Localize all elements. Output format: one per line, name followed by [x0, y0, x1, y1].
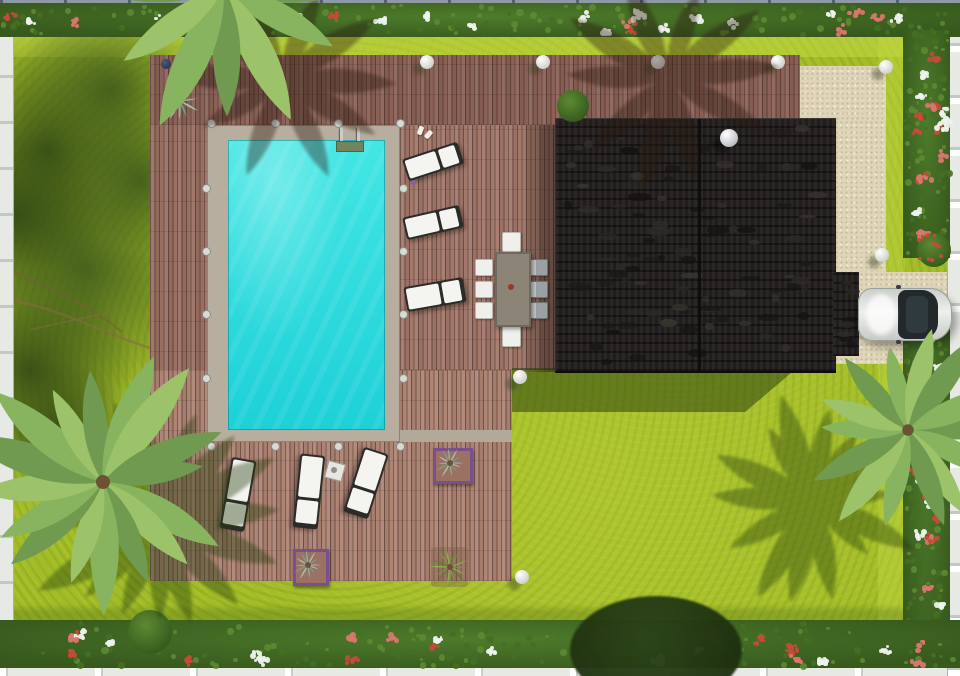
hedge-leaf [943, 12, 947, 16]
roof-stone [603, 323, 614, 328]
roof-stone [646, 310, 662, 316]
roof-stone [634, 281, 647, 285]
hedge-leaf [938, 643, 941, 646]
roof-stone [625, 266, 640, 272]
hedge-flower [433, 636, 438, 641]
hedge-leaf [911, 100, 917, 106]
hedge-flower [938, 154, 941, 157]
roof-stone [729, 289, 745, 296]
hedge-leaf [811, 660, 816, 665]
hedge-leaf [510, 653, 516, 659]
hedge-leaf [919, 34, 923, 38]
deck-light [399, 247, 408, 256]
hedge-leaf [938, 94, 945, 101]
hedge-leaf [385, 625, 389, 629]
hedge-leaf [905, 141, 910, 146]
hedge-leaf [530, 642, 536, 648]
hedge-flower [356, 658, 360, 662]
sphere-lamp [879, 60, 893, 74]
hedge-flower [5, 16, 10, 21]
roof-stone [672, 304, 688, 311]
hedge-leaf [924, 127, 928, 131]
lounger-backrest [439, 207, 460, 229]
hedge-leaf [904, 119, 907, 122]
hedge-flower [350, 659, 355, 664]
dining-chair [529, 281, 548, 298]
hedge-leaf [910, 218, 914, 222]
hedge-flower [841, 23, 845, 27]
hedge-leaf [449, 23, 452, 26]
hedge-leaf [908, 166, 911, 169]
hedge-leaf [939, 655, 943, 659]
hedge-flower [920, 118, 923, 121]
hedge-leaf [934, 46, 938, 50]
hedge-leaf [783, 653, 788, 658]
hedge-leaf [396, 651, 400, 655]
hedge-leaf [488, 6, 493, 11]
roof-stone [749, 240, 760, 245]
hedge-leaf [325, 648, 328, 651]
hedge-leaf [431, 663, 436, 668]
hedge-leaf [936, 190, 940, 194]
side-table-item [331, 467, 337, 473]
hedge-leaf [854, 647, 861, 654]
agave-plant [400, 413, 500, 513]
lounger-seat [406, 283, 442, 309]
hedge-leaf [558, 631, 561, 634]
hedge-flower [918, 229, 923, 234]
hedge-flower [918, 644, 922, 648]
flower-hedge [903, 30, 950, 258]
hedge-leaf [921, 47, 928, 54]
bush-flower [937, 245, 941, 249]
hedge-leaf [909, 106, 916, 113]
hedge-leaf [434, 19, 440, 25]
hedge-leaf [460, 628, 464, 632]
hedge-leaf [460, 634, 464, 638]
hedge-leaf [946, 39, 949, 42]
roof-stone [606, 330, 620, 333]
dining-table [495, 252, 531, 327]
dining-chair [529, 259, 548, 276]
hedge-flower [836, 32, 841, 37]
hedge-flower [879, 649, 883, 653]
hedge-flower [345, 661, 350, 666]
hedge-flower [938, 158, 944, 164]
palm-tree [20, 0, 428, 192]
palm-tree-crown [902, 424, 914, 436]
hedge-leaf [943, 232, 946, 235]
hedge-leaf [412, 638, 415, 641]
hedge-leaf [545, 635, 549, 639]
hedge-flower [854, 10, 860, 16]
hedge-leaf [905, 179, 912, 186]
bush-flower [917, 238, 921, 242]
hedge-leaf [946, 219, 949, 222]
hedge-leaf [10, 23, 17, 30]
hedge-flower [436, 645, 440, 649]
hedge-flower [795, 648, 800, 653]
roof-stone [675, 248, 692, 256]
hedge-leaf [439, 654, 446, 661]
hedge-flower [847, 11, 852, 16]
hedge-leaf [846, 20, 852, 26]
hedge-leaf [909, 650, 913, 654]
hedge-leaf [742, 661, 747, 666]
hedge-leaf [800, 663, 807, 670]
hedge-leaf [453, 663, 459, 669]
sphere-lamp [515, 570, 529, 584]
roof-stone [729, 225, 737, 233]
hedge-flower [882, 648, 888, 654]
roof-stone [716, 315, 729, 322]
hedge-flower [920, 70, 926, 76]
hedge-leaf [917, 149, 923, 155]
dining-chair [502, 325, 521, 347]
roof-stone [739, 321, 751, 325]
hedge-leaf [931, 40, 936, 45]
hedge-leaf [919, 197, 924, 202]
hedge-leaf [912, 31, 917, 36]
bush-flower [930, 258, 934, 262]
hedge-flower [896, 18, 901, 23]
bush-flower [925, 234, 929, 238]
roof-stone [681, 256, 695, 264]
hedge-leaf [381, 647, 386, 652]
hedge-leaf [560, 649, 567, 656]
lounger-backrest [441, 279, 462, 303]
dining-chair [475, 302, 493, 319]
deck-light [399, 374, 408, 383]
palm-tree [0, 308, 277, 656]
roof-stone [609, 270, 628, 278]
hedge-leaf [907, 88, 913, 94]
hedge-flower [934, 125, 940, 131]
hedge-flower [929, 177, 934, 182]
hedge-leaf [860, 658, 865, 663]
dining-chair [502, 232, 521, 252]
roof-stone [590, 343, 603, 351]
hedge-leaf [408, 649, 414, 655]
hedge-flower [932, 56, 935, 59]
hedge-flower [941, 129, 944, 132]
palm-tree-crown [96, 475, 110, 489]
deck-light [396, 442, 405, 451]
hedge-leaf [464, 658, 468, 662]
palm-shadow [522, 0, 814, 224]
dining-chair [475, 259, 493, 276]
hedge-leaf [942, 185, 946, 189]
hedge-leaf [946, 170, 953, 177]
hedge-leaf [938, 178, 942, 182]
hedge-leaf [470, 658, 477, 665]
hedge-leaf [327, 662, 332, 667]
lounger-backrest [346, 488, 373, 515]
hedge-leaf [420, 658, 423, 661]
grass-plant-crown [447, 564, 453, 570]
hedge-leaf [477, 646, 484, 653]
hedge-leaf [908, 161, 912, 165]
hedge-leaf [874, 25, 880, 31]
dining-chair [529, 302, 548, 319]
hedge-leaf [919, 84, 924, 89]
hedge-leaf [526, 635, 532, 641]
hedge-leaf [831, 660, 835, 664]
hedge-leaf [507, 12, 511, 16]
hedge-leaf [906, 251, 910, 255]
hedge-leaf [483, 21, 489, 27]
roof-stone [742, 276, 760, 279]
hedge-leaf [917, 25, 921, 29]
hedge-leaf [936, 12, 941, 17]
hedge-leaf [540, 659, 545, 664]
hedge-leaf [931, 653, 936, 658]
roof-stone [644, 257, 658, 261]
hedge-leaf [915, 121, 920, 126]
hedge-leaf [851, 5, 856, 10]
hedge-flower [831, 14, 835, 18]
hedge-leaf [885, 30, 891, 36]
hedge-leaf [367, 639, 372, 644]
hedge-leaf [837, 17, 842, 22]
roof-stone [799, 261, 813, 266]
roof-stone [705, 323, 714, 330]
hedge-leaf [908, 23, 914, 29]
hedge-flower [789, 654, 793, 658]
hedge-leaf [781, 662, 787, 668]
hedge-flower [836, 27, 841, 32]
bush-flower [939, 254, 943, 258]
hedge-leaf [479, 4, 485, 10]
hedge-leaf [933, 663, 938, 668]
hedge-leaf [502, 643, 506, 647]
hedge-leaf [817, 25, 824, 32]
sphere-lamp [513, 370, 527, 384]
hedge-leaf [942, 88, 945, 91]
table-centerpiece [508, 284, 514, 290]
roof-stone [702, 296, 710, 302]
hedge-leaf [904, 661, 908, 665]
roof-stone [598, 279, 613, 287]
deck-light [202, 247, 211, 256]
roof-stone [698, 307, 721, 311]
hedge-leaf [919, 155, 925, 161]
hedge-flower [918, 113, 922, 117]
hedge-leaf [932, 30, 937, 35]
roof-stone [786, 235, 803, 241]
roof-stone [626, 254, 641, 258]
palm-tree [759, 281, 960, 579]
roof-stone [707, 226, 729, 234]
hedge-leaf [450, 631, 456, 637]
hedge-flower [938, 121, 943, 126]
agave-plant-crown [447, 460, 453, 466]
hedge-leaf [840, 5, 846, 11]
hedge-leaf [511, 21, 518, 28]
hedge-leaf [484, 630, 488, 634]
hedge-leaf [419, 634, 426, 641]
hedge-leaf [911, 152, 915, 156]
hedge-flower [6, 13, 10, 17]
hedge-leaf [950, 657, 956, 663]
hedge-leaf [454, 31, 458, 35]
hedge-leaf [486, 636, 493, 643]
roof-stone [675, 286, 690, 290]
hedge-leaf [932, 83, 937, 88]
roof-stone [617, 322, 637, 329]
hedge-flower [870, 17, 873, 20]
roof-stone [658, 255, 666, 261]
hedge-flower [786, 643, 791, 648]
hedge-leaf [477, 13, 482, 18]
hedge-leaf [1, 22, 6, 27]
aerial-garden-render [0, 0, 960, 676]
dining-chair [475, 281, 493, 298]
hedge-flower [918, 93, 923, 98]
hedge-leaf [821, 6, 824, 9]
hedge-flower [879, 17, 883, 21]
hedge-leaf [923, 215, 926, 218]
hedge-leaf [409, 627, 414, 632]
roof-stone [601, 359, 612, 365]
hedge-flower [910, 659, 914, 663]
hedge-leaf [463, 643, 470, 650]
roof-stone [598, 233, 617, 240]
hedge-flower [915, 648, 920, 653]
deck-light [399, 310, 408, 319]
roof-stone [660, 319, 677, 327]
roof-stone [680, 326, 698, 334]
roof-stone [643, 238, 656, 242]
roof-stone [587, 314, 594, 320]
hedge-leaf [514, 642, 521, 649]
hedge-leaf [931, 112, 936, 117]
grass-plant [394, 511, 506, 623]
hedge-leaf [944, 30, 948, 34]
hedge-leaf [446, 654, 453, 661]
hedge-flower [830, 10, 833, 13]
hedge-leaf [355, 629, 362, 636]
roof-stone [568, 282, 590, 289]
hedge-leaf [451, 4, 456, 9]
hedge-leaf [451, 13, 455, 17]
hedge-leaf [939, 75, 946, 82]
hedge-leaf [420, 662, 427, 669]
roof-stone [629, 354, 646, 362]
hedge-leaf [909, 238, 912, 241]
roof-stone [621, 278, 628, 282]
roof-stone [596, 258, 615, 261]
hedge-flower [825, 659, 829, 663]
hedge-leaf [910, 119, 913, 122]
hedge-leaf [513, 28, 517, 32]
lounger-backrest [438, 144, 460, 167]
hedge-leaf [908, 57, 913, 62]
hedge-flower [11, 12, 14, 15]
roof-stone [625, 309, 643, 315]
hedge-flower [888, 650, 892, 654]
hedge-leaf [913, 43, 919, 49]
deck-light [334, 442, 343, 451]
hedge-leaf [427, 626, 431, 630]
sphere-lamp [875, 248, 889, 262]
hedge-leaf [902, 7, 907, 12]
bush-flower [927, 257, 931, 261]
hedge-flower [919, 132, 922, 135]
roof-stone [737, 227, 756, 234]
hedge-leaf [940, 21, 945, 26]
hedge-leaf [941, 48, 945, 52]
